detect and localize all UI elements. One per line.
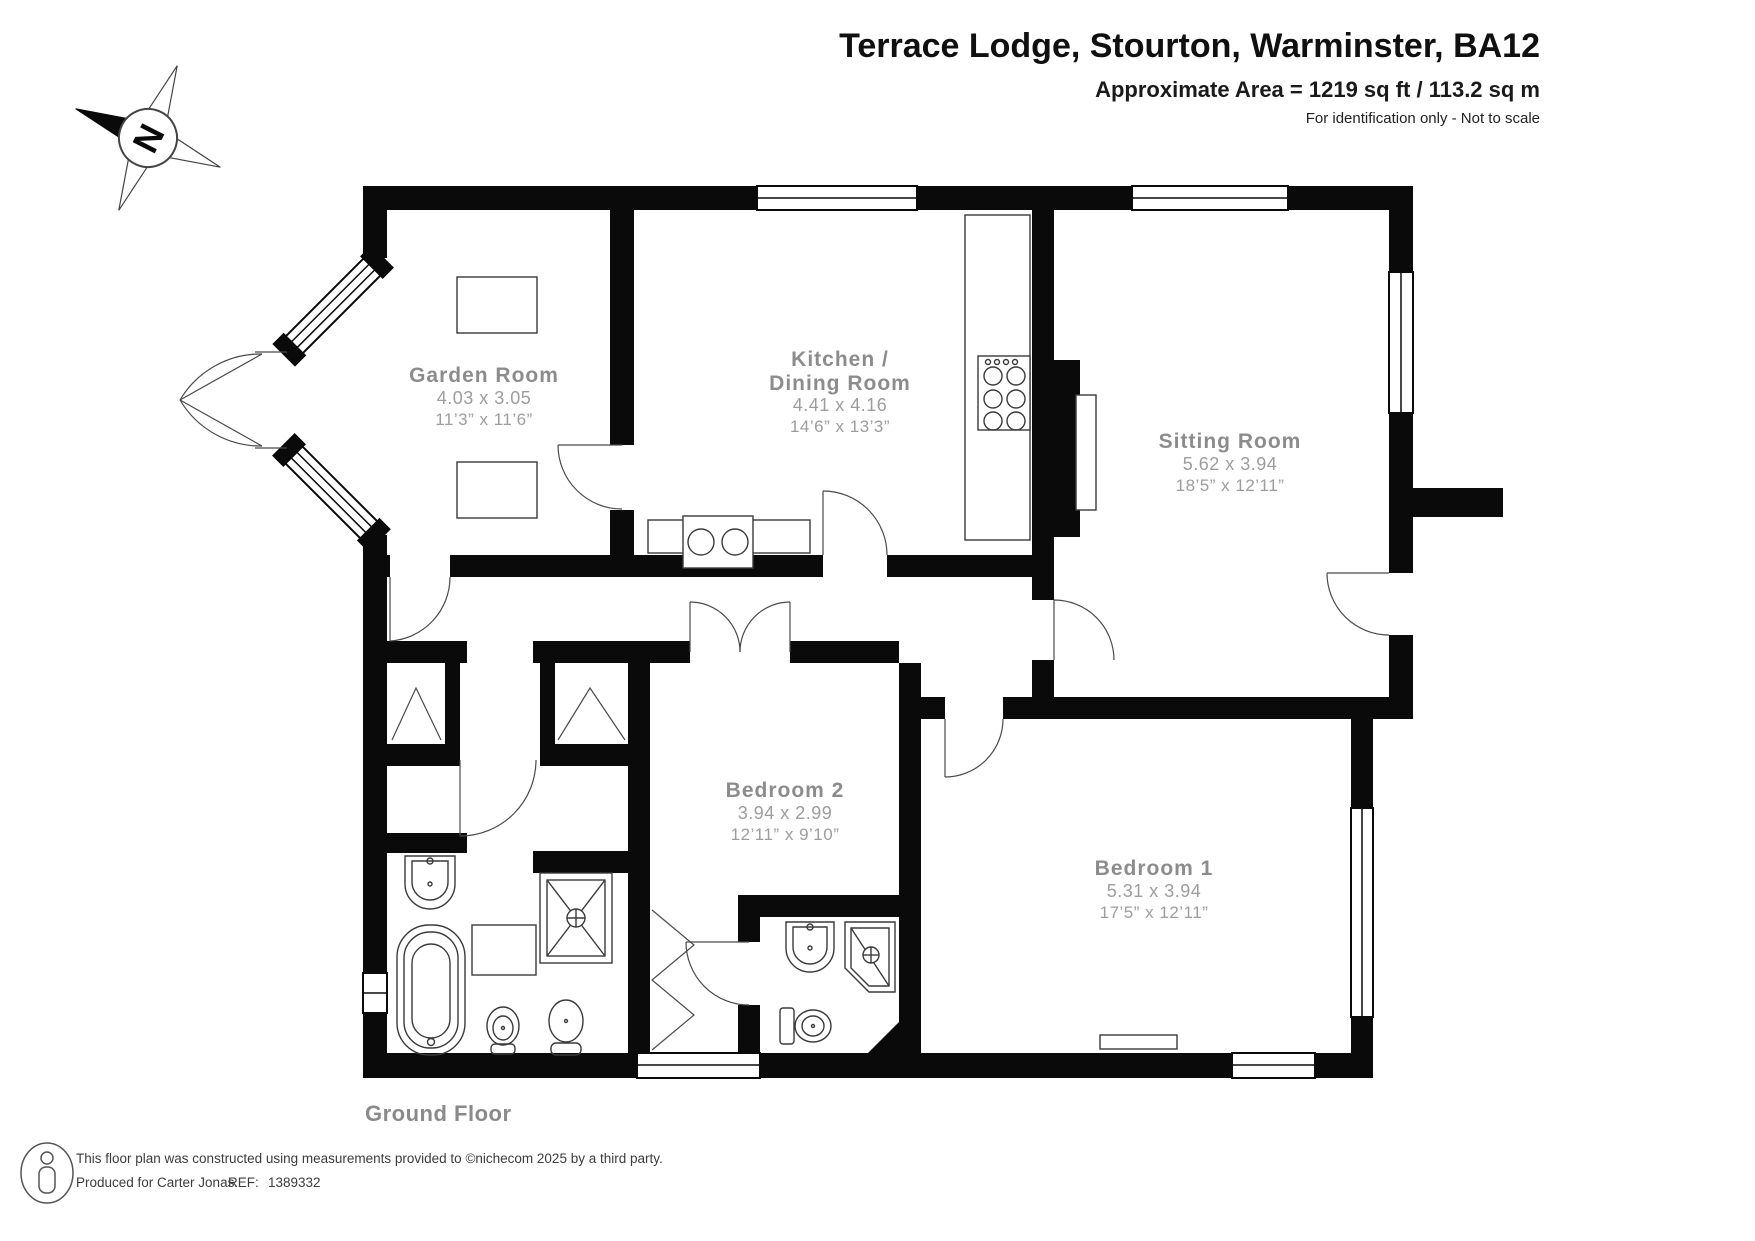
room-label-kitchen-1: Kitchen /: [791, 348, 889, 371]
footer-line2: Produced for Carter Jonas.: [76, 1175, 238, 1190]
room-labels: Garden Room 4.03 x 3.05 11’3” x 11’6” Ki…: [409, 348, 1301, 922]
door-kitchen-hall: [823, 491, 887, 555]
bidet-icon: [487, 1007, 519, 1054]
bathroom-shower-icon: [540, 873, 612, 963]
room-metric-kitchen: 4.41 x 4.16: [793, 395, 888, 415]
footer-line1: This floor plan was constructed using me…: [76, 1151, 663, 1166]
room-metric-bedroom2: 3.94 x 2.99: [738, 803, 833, 823]
wardrobe-doors-bedroom2: [652, 910, 694, 1050]
room-imperial-bedroom1: 17’5” x 12’11”: [1100, 903, 1209, 922]
room-metric-sitting: 5.62 x 3.94: [1183, 454, 1278, 474]
door-bedroom1: [945, 719, 1003, 777]
hob-icon: [978, 356, 1030, 430]
floorplan-canvas: Terrace Lodge, Stourton, Warminster, BA1…: [0, 0, 1755, 1241]
bathroom-left-window: [363, 973, 387, 1013]
bathroom-basin-icon: [405, 856, 455, 909]
bay-window-upper: [272, 245, 394, 367]
bathtub-icon: [397, 925, 465, 1055]
room-imperial-bedroom2: 12’11” x 9’10”: [731, 825, 840, 844]
door-bedroom2-double: [690, 602, 790, 652]
bay-double-doors: [180, 352, 287, 448]
shower-room-bottom-window: [637, 1053, 760, 1078]
room-label-sitting: Sitting Room: [1159, 430, 1302, 453]
page-title: Terrace Lodge, Stourton, Warminster, BA1…: [839, 27, 1540, 65]
door-ensuite: [686, 942, 749, 1005]
fixtures: [397, 215, 1177, 1055]
footer-ref-label: REF:: [228, 1175, 259, 1190]
cupboard-bifold-doors: [392, 688, 625, 740]
oven-icon: [683, 516, 753, 568]
area-text: Approximate Area = 1219 sq ft / 113.2 sq…: [1095, 77, 1540, 102]
door-hall-sitting: [1054, 600, 1114, 660]
bedroom1-right-window: [1351, 808, 1373, 1017]
person-icon: [21, 1143, 73, 1203]
corner-shower-icon: [845, 922, 895, 992]
disclaimer-text: For identification only - Not to scale: [1306, 110, 1540, 127]
radiator: [1100, 1035, 1177, 1049]
room-label-kitchen-2: Dining Room: [769, 372, 911, 395]
door-garden-kitchen: [558, 445, 622, 509]
fireplace: [1076, 395, 1096, 510]
door-sitting-right: [1327, 573, 1389, 635]
ensuite-basin-icon: [786, 922, 834, 972]
sitting-right-window: [1389, 272, 1413, 413]
room-label-garden: Garden Room: [409, 364, 559, 387]
room-label-bedroom1: Bedroom 1: [1095, 857, 1214, 880]
compass-icon: N: [46, 36, 249, 239]
floorplan-page: Terrace Lodge, Stourton, Warminster, BA1…: [0, 0, 1755, 1241]
room-metric-bedroom1: 5.31 x 3.94: [1107, 881, 1202, 901]
room-imperial-kitchen: 14’6” x 13’3”: [790, 417, 890, 436]
sitting-top-window: [1132, 186, 1288, 210]
toilet-icon-bathroom: [549, 1000, 583, 1055]
room-label-bedroom2: Bedroom 2: [726, 779, 845, 802]
footer-ref-value: 1389332: [268, 1175, 321, 1190]
kitchen-top-window: [757, 186, 917, 210]
bay-window-lower: [272, 433, 391, 552]
room-metric-garden: 4.03 x 3.05: [437, 388, 532, 408]
garden-furniture-1: [457, 277, 537, 333]
toilet-icon-ensuite: [780, 1008, 831, 1044]
door-garden-hall: [390, 577, 450, 641]
room-imperial-garden: 11’3” x 11’6”: [435, 410, 533, 429]
garden-furniture-2: [457, 462, 537, 518]
bathroom-cabinet: [472, 925, 536, 975]
door-bathroom: [460, 760, 536, 836]
footer: This floor plan was constructed using me…: [21, 1143, 663, 1203]
walls: [363, 186, 1503, 1078]
floor-label: Ground Floor: [365, 1101, 512, 1126]
bedroom1-bottom-window: [1232, 1053, 1315, 1078]
room-imperial-sitting: 18’5” x 12’11”: [1176, 476, 1285, 495]
